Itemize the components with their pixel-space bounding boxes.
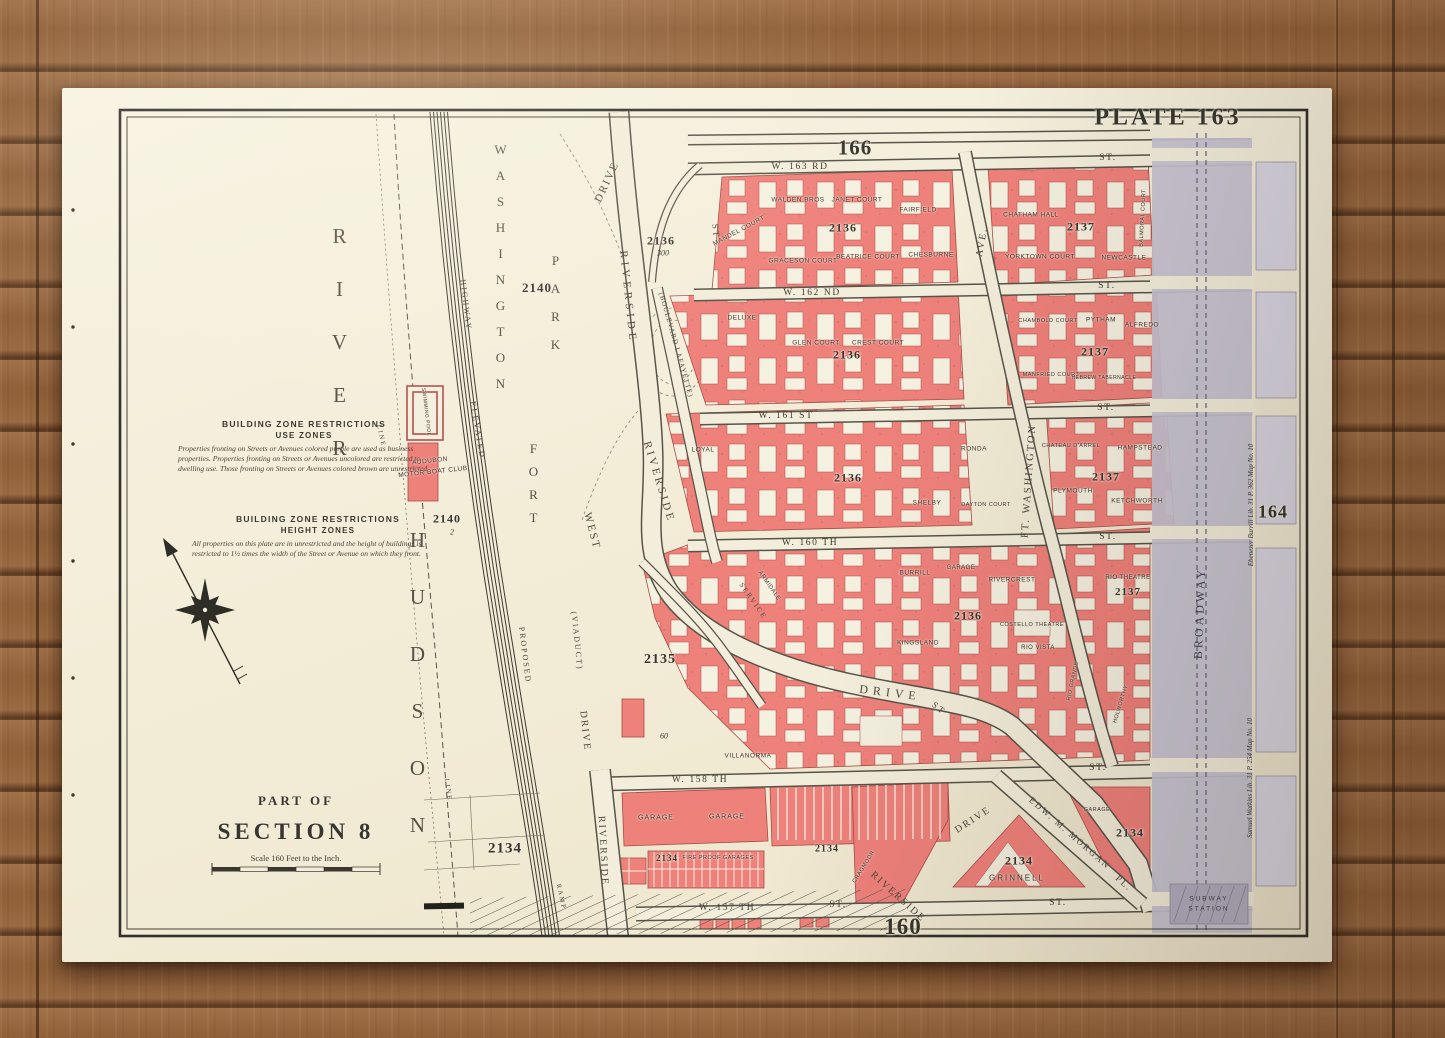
building-label-janet-court: JANET COURT <box>832 197 883 204</box>
block-number-2134-morgan: 2134 <box>1116 826 1144 841</box>
building-label-garage-east: GARAGE <box>709 814 745 821</box>
block-number-2137-c: 2137 <box>1092 470 1120 485</box>
title-part-of: PART OF <box>258 793 334 809</box>
building-label-costello-theatre: COSTELLO THEATRE <box>1000 622 1064 628</box>
street-label-w161st: W. 161 ST <box>759 411 814 421</box>
building-label-chambold-court: CHAMBOLD COURT <box>1018 318 1077 324</box>
building-label-hebrew-tabernacle: HEBREW TABERNACLE <box>1072 375 1137 381</box>
building-label-glen-court: GLEN COURT <box>792 340 840 347</box>
building-label-crest-court: CREST COURT <box>852 340 904 347</box>
compass-rose <box>163 538 247 684</box>
zone-use-title: BUILDING ZONE RESTRICTIONS <box>178 419 430 429</box>
block-number-2136-b: 2136 <box>833 348 861 363</box>
block-number-2136-d: 2136 <box>954 609 982 624</box>
building-label-rio-theatre: RIO THEATRE <box>1105 575 1150 581</box>
photo-of-atlas-map: { "plate": {"label":"PLATE 163","adjoini… <box>0 0 1445 1038</box>
scale-note: Scale 160 Feet to the Inch. <box>251 853 342 863</box>
building-label-hampstead: HAMPSTEAD <box>1118 445 1163 452</box>
block-number-2135: 2135 <box>644 652 676 668</box>
building-label-garage-2136: GARAGE <box>947 565 976 571</box>
building-label-pytham: PYTHAM <box>1086 317 1116 324</box>
hudson-river-word-river: RIVER <box>327 224 352 489</box>
adjoining-plate-top: 166 <box>838 136 873 161</box>
block-number-2134-grinnell: 2134 <box>1005 854 1033 869</box>
farm-line-note-upper: Ebenezer Burrill Lib. 31 P. 362 Map No. … <box>1247 444 1255 567</box>
scale-bar <box>212 863 380 875</box>
street-suffix-w160th: ST. <box>1099 532 1117 542</box>
adjoining-plate-right: 164 <box>1258 502 1288 523</box>
block-number-2137-a: 2137 <box>1067 220 1095 235</box>
building-label-newcastle: NEWCASTLE <box>1102 255 1147 262</box>
building-label-loyal: LOYAL <box>692 447 715 454</box>
block-number-2134-fireproof: 2134 <box>656 853 678 863</box>
street-label-w160th: W. 160 TH <box>782 538 838 548</box>
building-label-chesburne: CHESBURNE <box>908 252 953 259</box>
street-suffix-w162nd: ST. <box>1098 281 1116 291</box>
building-label-kingsland: KINGSLAND <box>897 640 939 647</box>
building-label-ronda: RONDA <box>961 446 987 453</box>
building-label-garage-west: GARAGE <box>638 815 674 822</box>
building-label-walden-bros: WALDEN BROS <box>771 197 824 204</box>
building-label-chateau-darrel: CHATEAU D'ARREL <box>1042 443 1100 449</box>
building-label-fireproof-garages: FIRE PROOF GARAGES <box>682 855 753 861</box>
east-of-broadway-blocks <box>1256 162 1296 886</box>
zone-use-text: Properties fronting on Streets or Avenue… <box>178 444 430 474</box>
building-label-villanorma: VILLANORMA <box>725 753 772 760</box>
block-number-2140-park: 2140 <box>522 280 552 296</box>
city-blocks <box>642 159 1174 769</box>
zone-height-title: BUILDING ZONE RESTRICTIONS <box>192 514 444 524</box>
block-number-2134-shore: 2134 <box>488 841 522 858</box>
block-number-2140-club: 2140 <box>433 512 461 527</box>
building-label-grinnell: GRINNELL <box>989 874 1045 883</box>
building-label-deluxe: DELUXE <box>727 315 756 322</box>
pier <box>424 903 464 910</box>
building-label-ketchworth: KETCHWORTH <box>1111 498 1162 505</box>
farm-line-note-lower: Samuel Watkins Lib. 31 P. 254 Map No. 10 <box>1246 718 1254 838</box>
building-label-shelby: SHELBY <box>913 500 942 507</box>
building-label-beatrice-court: BEATRICE COURT <box>836 254 900 261</box>
hudson-river-word-hudson: HUDSON <box>405 528 430 870</box>
subway-station-label-2: STATION <box>1188 906 1229 913</box>
building-label-rio-vista: RIO VISTA <box>1021 645 1055 651</box>
street-label-w158th: W. 158 TH <box>672 775 728 785</box>
street-label-w162nd: W. 162 ND <box>783 288 841 298</box>
lot-number-300: 300 <box>657 249 669 258</box>
street-suffix-w161st: ST. <box>1097 403 1115 413</box>
subway-station-label-1: SUBWAY <box>1189 896 1228 903</box>
road-label-broadway: BROADWAY <box>1191 567 1209 660</box>
block-number-2137-b: 2137 <box>1081 345 1109 360</box>
title-section: SECTION 8 <box>218 819 375 845</box>
building-label-garage-morgan: GARAGE <box>1084 807 1111 813</box>
street-label-w163rd: W. 163 RD <box>771 162 828 172</box>
building-label-plymouth: PLYMOUTH <box>1053 488 1093 495</box>
building-label-burrill: BURRILL <box>900 570 931 577</box>
street-suffix-w157th-east: ST. <box>1049 898 1067 908</box>
lot-number-2: 2 <box>450 528 454 537</box>
street-suffix-w163rd: ST. <box>1099 153 1117 163</box>
zone-note-use: BUILDING ZONE RESTRICTIONS USE ZONES Pro… <box>178 419 430 474</box>
building-label-yorktown-court: YORKTOWN COURT <box>1005 254 1075 261</box>
subway-station-area <box>1170 884 1248 924</box>
building-label-alfredo: ALFREDO <box>1125 322 1159 329</box>
zone-use-subtitle: USE ZONES <box>178 431 430 440</box>
plate-label: PLATE 163 <box>1094 105 1241 132</box>
fort-washington-park-word-washington: WASHINGTON <box>492 142 508 402</box>
street-suffix-w158th: ST. <box>1089 763 1107 773</box>
building-label-rivercrest: RIVERCREST <box>989 577 1036 584</box>
block-number-2136-circle: 2136 <box>647 234 675 249</box>
fort-washington-park-word-fort: FORT <box>525 441 541 533</box>
lot-number-60: 60 <box>660 732 668 741</box>
building-label-chatham-hall: CHATHAM HALL <box>1003 212 1059 219</box>
block-number-2136-c: 2136 <box>834 471 862 486</box>
street-label-w157th: W. 157 TH <box>699 903 755 913</box>
block-number-2136-a: 2136 <box>829 221 857 236</box>
street-suffix-w157th: ST. <box>829 900 847 910</box>
building-label-fairfield: FAIRFIELD <box>899 207 936 214</box>
block-number-2134-rowhouses: 2134 <box>815 844 839 855</box>
building-label-dayton-court: DAYTON COURT <box>961 502 1010 508</box>
fort-washington-park-word-park: PARK <box>547 253 563 365</box>
block-number-2137-d: 2137 <box>1115 586 1141 598</box>
binding-holes <box>71 208 74 796</box>
building-label-graceson-court: GRACESON COURT <box>769 258 838 265</box>
